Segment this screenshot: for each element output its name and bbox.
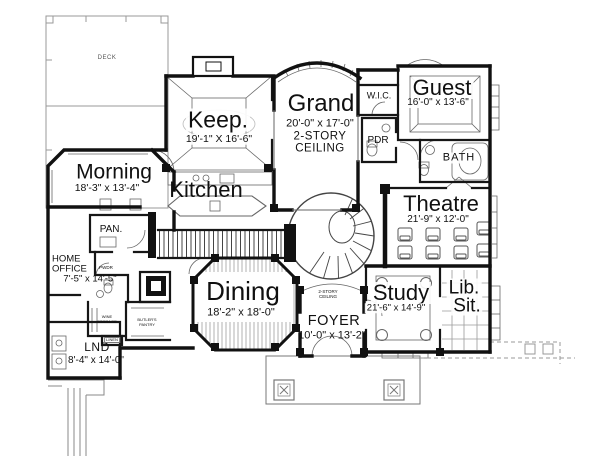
room-label-lib-sit-2: Sit. (451, 297, 482, 316)
theatre-seats (398, 222, 491, 259)
room-label-wic: W.I.C. (367, 92, 392, 101)
room-dims-foyer: 10'-0" x 13'-2" (298, 331, 366, 342)
room-label-deck: DECK (98, 55, 117, 61)
room-dims-keep: 19'-1" X 16'-6" (184, 134, 254, 145)
room-label-pwdr: PWDR (99, 266, 113, 271)
room-dims-study: 21'-6" x 14'-9" (365, 303, 427, 313)
room-label-pdr: PDR (367, 136, 388, 146)
room-label-morning: Morning (76, 162, 152, 183)
room-note-foyer-2: CEILING (319, 295, 337, 300)
room-label-theatre: Theatre (401, 193, 481, 215)
room-label-guest: Guest (411, 77, 474, 99)
room-label-study: Study (371, 282, 431, 304)
room-dims-theatre: 21'-9" x 12'-0" (405, 215, 471, 225)
floorplan-canvas: DECK Morning 18'-3" x 13'-4" Keep. 19'-1… (0, 0, 600, 462)
fixture-room-core (151, 281, 161, 291)
front-porch (266, 356, 420, 404)
floorplan-drawing (0, 0, 600, 462)
room-label-bath: BATH (441, 153, 478, 164)
room-label-pantry: PAN. (100, 225, 123, 235)
room-note-grand-2: CEILING (295, 143, 345, 155)
room-note-grand-1: 2-STORY (294, 131, 347, 143)
room-label-linen: LINEN (104, 337, 120, 343)
room-dims-guest: 16'-0" x 13'-6" (405, 98, 471, 108)
rear-steps (48, 380, 104, 456)
room-label-wine-2: STORAGE (97, 320, 117, 324)
spiral-staircase (288, 193, 374, 279)
room-label-grand: Grand (288, 92, 355, 116)
room-label-keep: Keep. (186, 109, 250, 132)
room-label-dining: Dining (206, 278, 280, 304)
room-dims-laundry: 8'-4" x 14'-0" (68, 356, 124, 366)
room-dims-home-office: 7'-5" x 14'-5" (63, 274, 116, 284)
room-label-kitchen: Kitchen (169, 179, 242, 201)
room-dims-morning: 18'-3" x 13'-4" (75, 183, 140, 194)
stair-hatch (158, 231, 292, 257)
room-label-foyer: FOYER (308, 314, 360, 329)
chimney (193, 57, 233, 76)
room-dims-dining: 18'-2" x 18'-0" (207, 308, 275, 319)
room-label-butlers-2: PANTRY (139, 323, 155, 327)
room-dims-grand: 20'-0" x 17'-0" (286, 119, 354, 130)
